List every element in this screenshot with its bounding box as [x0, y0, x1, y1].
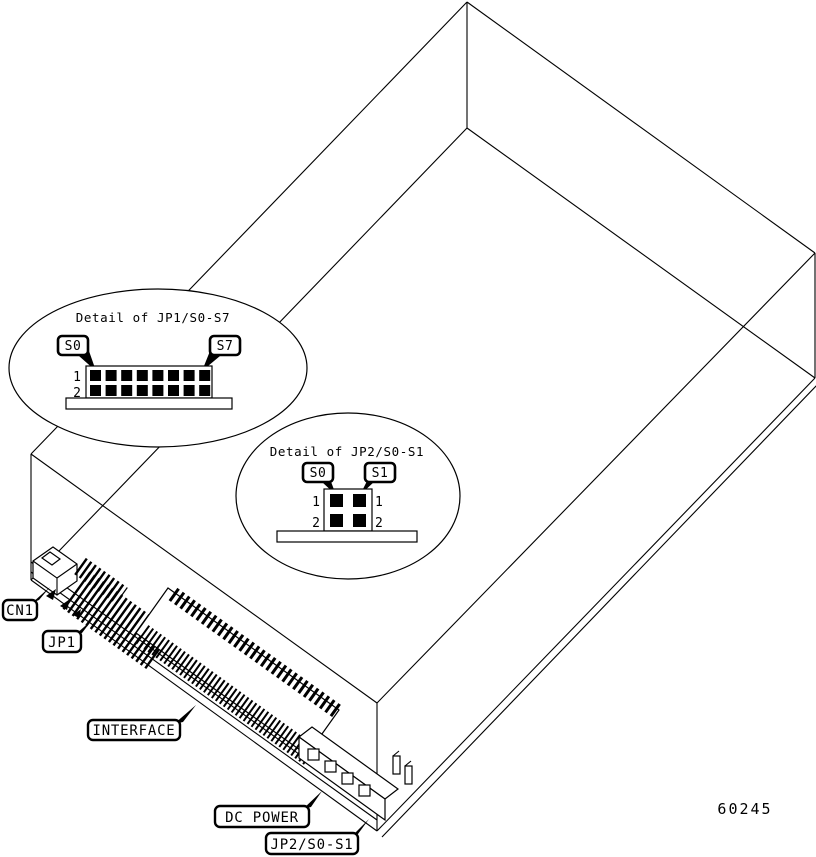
jp2-row2-label-left: 2 [312, 516, 320, 531]
jp1-row1-label: 1 [73, 370, 81, 385]
dc-power-connector [299, 727, 398, 820]
jumper-pin [121, 385, 132, 396]
jp2-callout-label: JP2/S0-S1 [270, 837, 353, 853]
jp2-row2-label-right: 2 [375, 516, 383, 531]
jumper-pin [152, 370, 163, 381]
detail-bubble-jp1: Detail of JP1/S0-S7 S0 S7 1 2 [9, 289, 307, 447]
cn1-callout: CN1 [3, 587, 50, 620]
top-face-back-right-edge [467, 2, 815, 253]
front-edge-components [33, 547, 412, 820]
interface-callout: INTERFACE [88, 705, 196, 740]
jumper-pin [121, 370, 132, 381]
jumper-pin [168, 385, 179, 396]
jumper-pin [330, 494, 343, 507]
jp2-pin [393, 756, 400, 774]
cn1-connector-body [33, 547, 77, 595]
jumper-pin [330, 514, 343, 527]
jumper-pin [90, 385, 101, 396]
detail-bubble-jp2-title: Detail of JP2/S0-S1 [270, 444, 424, 459]
jumper-pin [199, 370, 210, 381]
jp2-header-base [277, 531, 417, 542]
dc-power-pin [325, 761, 336, 772]
drive-jumper-diagram: Detail of JP1/S0-S7 S0 S7 1 2 Detail of … [0, 0, 816, 857]
jumper-pin [199, 385, 210, 396]
dc-power-pin [359, 785, 370, 796]
jumper-pin [184, 385, 195, 396]
jumper-pin [90, 370, 101, 381]
jumper-pin [168, 370, 179, 381]
jumper-pin [184, 370, 195, 381]
bottom-back-right-edge [467, 128, 815, 378]
dc-power-callout: DC POWER [215, 791, 322, 827]
s1-callout-label: S1 [372, 466, 389, 481]
pcb-front-right-edge [382, 384, 816, 837]
cn1-callout-label: CN1 [6, 603, 34, 619]
s0-callout-label: S0 [310, 466, 327, 481]
detail-bubble-jp1-title: Detail of JP1/S0-S7 [76, 310, 230, 325]
s7-callout-label: S7 [217, 339, 234, 354]
figure-number: 60245 [717, 800, 772, 818]
dc-power-pin [342, 773, 353, 784]
cn1-connector [33, 547, 77, 595]
jp2-jumper-pins [393, 751, 412, 784]
jumper-pin [137, 370, 148, 381]
jumper-pin [152, 385, 163, 396]
bottom-front-right-edge [377, 378, 815, 831]
jp1-callout-label: JP1 [48, 635, 76, 651]
dc-power-callout-label: DC POWER [225, 810, 299, 826]
dc-power-pin [308, 749, 319, 760]
jumper-pin [137, 385, 148, 396]
jumper-pin [106, 370, 117, 381]
interface-callout-label: INTERFACE [92, 723, 175, 739]
jp1-callout: JP1 [43, 620, 92, 652]
s0-callout-label: S0 [65, 339, 82, 354]
jp2-pin-top-edge [405, 761, 411, 766]
jp1-header-base [66, 398, 232, 409]
jumper-pin [353, 514, 366, 527]
detail-bubble-jp2: Detail of JP2/S0-S1 S0 S1 1 2 1 2 [236, 413, 460, 579]
jp2-pin [405, 766, 412, 784]
jp2-row1-label-right: 1 [375, 495, 383, 510]
jumper-pin [106, 385, 117, 396]
jp2-pin-top-edge [393, 751, 399, 756]
jp1-pins-upper-hatch [80, 566, 122, 596]
figure-canvas: Detail of JP1/S0-S7 S0 S7 1 2 Detail of … [0, 0, 816, 857]
jp2-row1-label-left: 1 [312, 495, 320, 510]
jumper-pin [353, 494, 366, 507]
